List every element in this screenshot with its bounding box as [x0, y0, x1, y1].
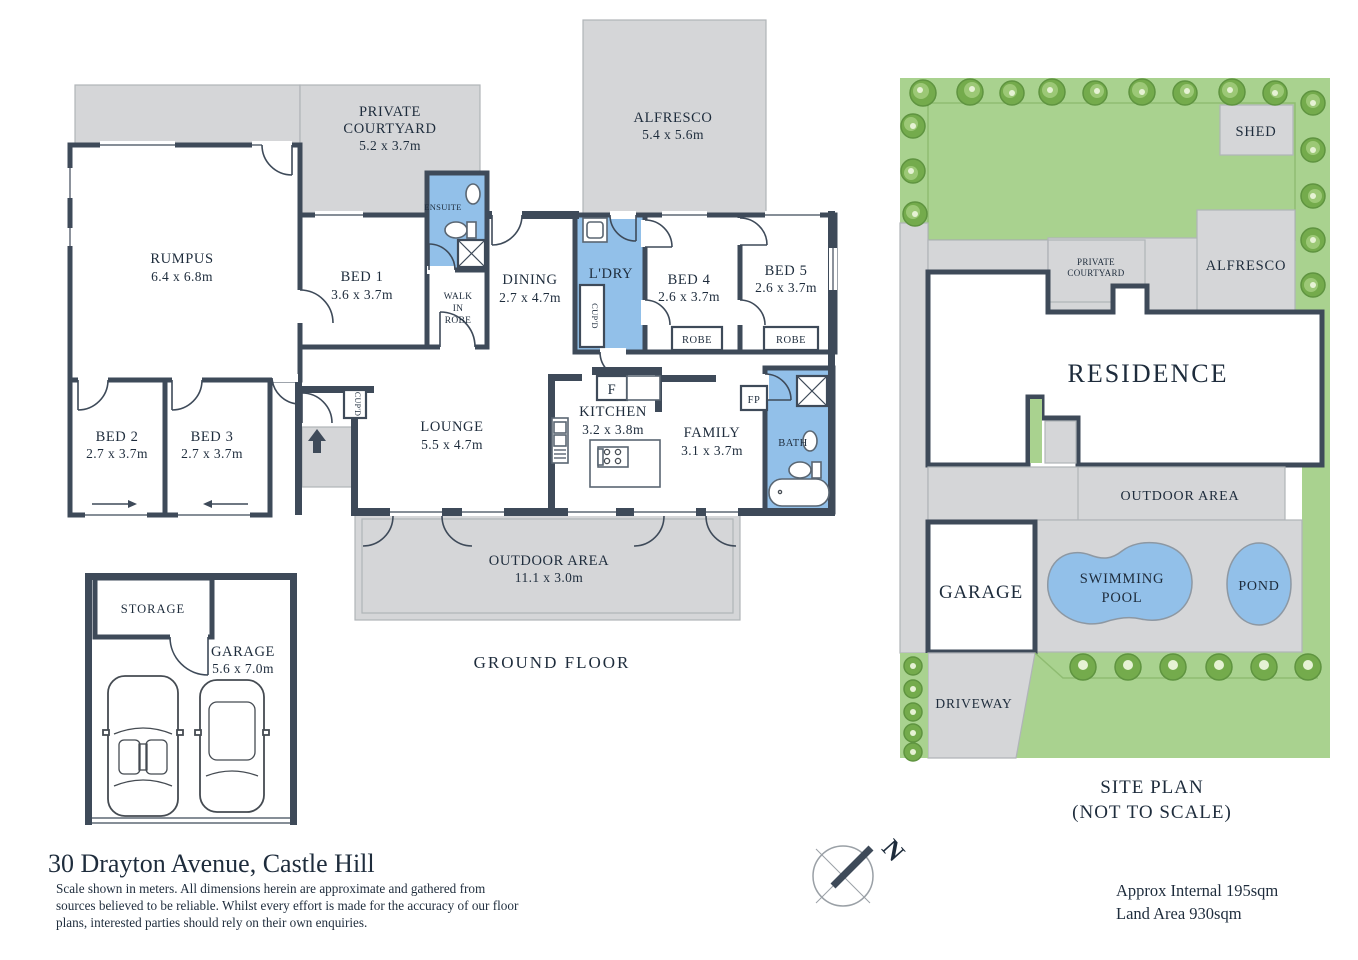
label-site-courtyard-2: COURTYARD	[1067, 268, 1124, 278]
label-bed4: BED 4	[668, 272, 711, 288]
label-site-courtyard-1: PRIVATE	[1077, 257, 1115, 267]
label-kitchen-dims: 3.2 x 3.8m	[582, 422, 644, 437]
disclaimer-line-2: sources believed to be reliable. Whilst …	[56, 898, 519, 913]
rear-path	[928, 240, 1048, 274]
land-area-text: Land Area 930sqm	[1116, 904, 1242, 923]
label-lounge: LOUNGE	[420, 419, 483, 435]
label-lounge-dims: 5.5 x 4.7m	[421, 437, 483, 452]
label-family: FAMILY	[684, 425, 741, 441]
label-site-alfresco: ALFRESCO	[1206, 258, 1287, 274]
label-dining: DINING	[502, 272, 557, 288]
label-site-outdoor: OUTDOOR AREA	[1121, 489, 1240, 504]
label-garage-dims: 5.6 x 7.0m	[212, 661, 274, 676]
site-plan: SHED PRIVATE COURTYARD ALFRESCO RESIDENC…	[900, 78, 1330, 823]
label-garage: GARAGE	[211, 644, 275, 660]
label-site-pool-2: POOL	[1101, 590, 1142, 606]
label-outdoor-dims: 11.1 x 3.0m	[515, 570, 583, 585]
label-site-plan-title-2: (NOT TO SCALE)	[1072, 802, 1232, 823]
label-entry-cupd: CUP'D	[353, 392, 362, 416]
floorplan-canvas: PRIVATE COURTYARD 5.2 x 3.7m ALFRESCO 5.…	[0, 0, 1358, 960]
car-convertible	[103, 676, 183, 816]
label-bed2: BED 2	[96, 429, 139, 445]
label-bed3-dims: 2.7 x 3.7m	[181, 446, 243, 461]
label-bath: BATH	[778, 438, 807, 449]
label-private-courtyard-dims: 5.2 x 3.7m	[359, 138, 421, 153]
label-storage: STORAGE	[121, 602, 185, 616]
compass-north-label: N	[876, 834, 910, 868]
label-laundry: L'DRY	[589, 266, 633, 282]
label-fridge: F	[608, 382, 617, 398]
garage-building: STORAGE GARAGE 5.6 x 7.0m	[85, 573, 297, 825]
label-outdoor: OUTDOOR AREA	[489, 553, 609, 569]
floorplan-page: PRIVATE COURTYARD 5.2 x 3.7m ALFRESCO 5.…	[0, 0, 1358, 960]
residence-gray-step	[1045, 421, 1076, 463]
entry-porch	[302, 427, 352, 487]
label-robe-bed5: ROBE	[776, 335, 806, 346]
label-alfresco-dims: 5.4 x 5.6m	[642, 127, 704, 142]
label-rumpus-dims: 6.4 x 6.8m	[151, 269, 213, 284]
compass: N	[813, 834, 911, 906]
label-site-pool-1: SWIMMING	[1080, 571, 1165, 587]
label-site-plan-title-1: SITE PLAN	[1100, 777, 1203, 798]
label-site-residence: RESIDENCE	[1068, 359, 1229, 388]
label-bed1: BED 1	[341, 269, 384, 285]
label-wir-3: ROBE	[445, 316, 472, 326]
label-alfresco: ALFRESCO	[634, 110, 713, 126]
label-site-shed: SHED	[1235, 124, 1276, 140]
label-ensuite: ENSUITE	[424, 202, 462, 212]
label-site-pond: POND	[1238, 579, 1279, 594]
label-private-courtyard-2: COURTYARD	[343, 121, 436, 137]
label-fireplace: FP	[748, 395, 761, 406]
label-family-dims: 3.1 x 3.7m	[681, 443, 743, 458]
label-ground-floor: GROUND FLOOR	[474, 653, 631, 672]
label-bed2-dims: 2.7 x 3.7m	[86, 446, 148, 461]
label-private-courtyard-1: PRIVATE	[359, 104, 421, 120]
label-bed5: BED 5	[765, 263, 808, 279]
residence-green-strip	[1030, 399, 1042, 463]
label-wir-1: WALK	[444, 292, 473, 302]
disclaimer-line-1: Scale shown in meters. All dimensions he…	[56, 881, 486, 896]
label-kitchen: KITCHEN	[579, 404, 647, 420]
label-robe-bed4: ROBE	[682, 335, 712, 346]
label-rumpus: RUMPUS	[150, 251, 213, 267]
label-site-driveway: DRIVEWAY	[935, 696, 1012, 711]
label-bed4-dims: 2.6 x 3.7m	[658, 289, 720, 304]
address-title: 30 Drayton Avenue, Castle Hill	[48, 849, 375, 878]
label-bed5-dims: 2.6 x 3.7m	[755, 280, 817, 295]
compass-needle	[833, 848, 871, 886]
label-site-garage: GARAGE	[939, 582, 1023, 603]
footer: 30 Drayton Avenue, Castle Hill Scale sho…	[48, 849, 1278, 930]
car-sedan	[195, 680, 269, 812]
disclaimer-line-3: plans, interested parties should rely on…	[56, 915, 367, 930]
label-laundry-cupd: CUP'D	[590, 303, 600, 329]
label-dining-dims: 2.7 x 4.7m	[499, 290, 561, 305]
side-path	[900, 223, 928, 653]
label-bed3: BED 3	[191, 429, 234, 445]
label-bed1-dims: 3.6 x 3.7m	[331, 287, 393, 302]
veranda-strip	[75, 85, 300, 145]
approx-internal-text: Approx Internal 195sqm	[1116, 881, 1278, 900]
label-wir-2: IN	[453, 304, 464, 314]
